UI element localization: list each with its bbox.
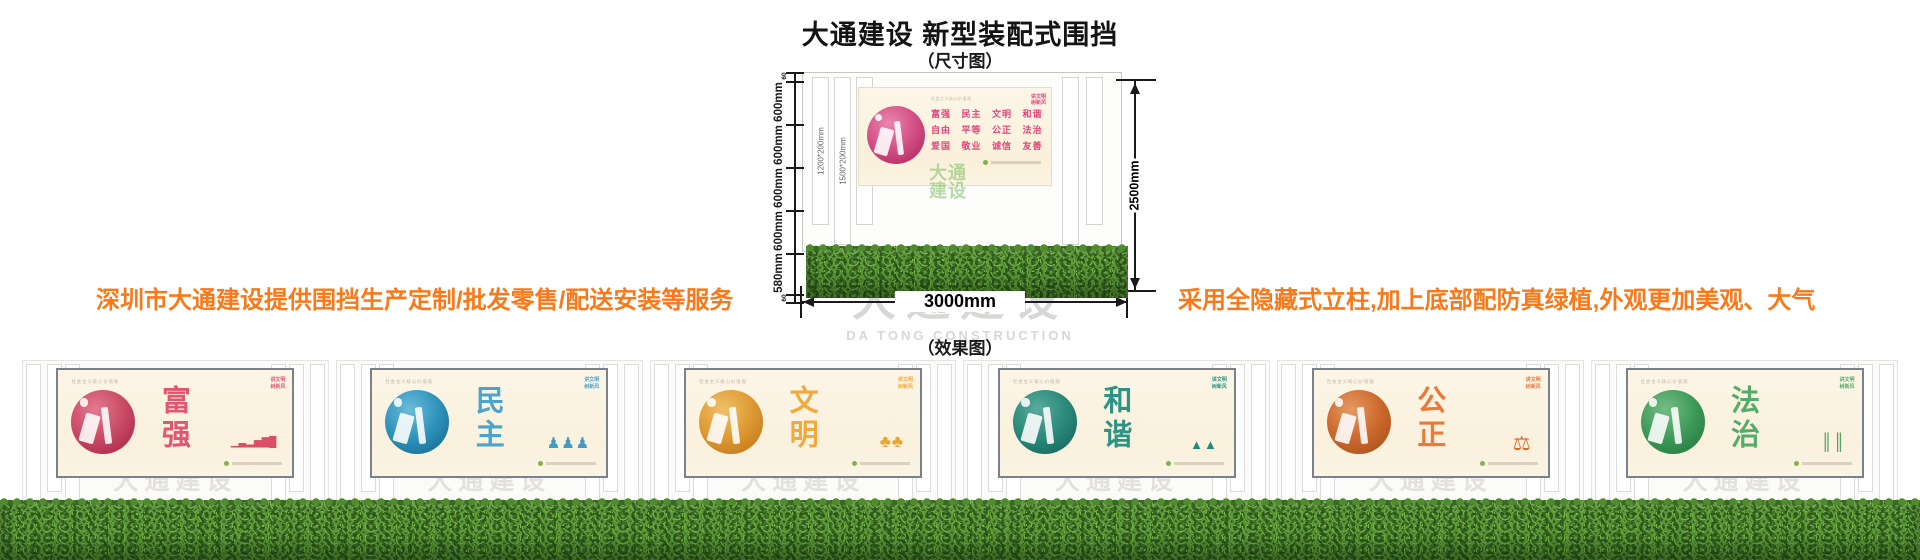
poster-badge: 讲文明 树新风: [898, 377, 913, 390]
fence-slat-right: [1062, 77, 1079, 245]
circle-decoration: [1020, 413, 1043, 446]
poster-badge: 讲文明 树新风: [584, 377, 599, 390]
poster-core-values: 社会主义核心价值观 讲文明 树新风 富强 民主 文明 和谐 自由 平等 公正 法…: [858, 87, 1052, 186]
fence-section-fazhi: 大通建设 DA TONG CONSTRUCTION 社会主义核心价值观 讲文明 …: [1591, 360, 1898, 510]
tiny-text-line: [1174, 462, 1224, 465]
footer-mark: [852, 461, 910, 466]
circle-decoration: [873, 127, 894, 156]
theme-circle: [1013, 390, 1077, 454]
width-dimension-label: 3000mm: [895, 291, 1025, 312]
green-dot: [538, 461, 543, 466]
promo-text-left: 深圳市大通建设提供围挡生产定制/批发零售/配送安装等服务: [96, 280, 733, 315]
city-bars-motif: ▁▃▂▅▇█: [231, 437, 277, 448]
theme-circle: [71, 390, 135, 454]
badge-line: 讲文明: [270, 377, 285, 384]
poster-badge: 讲文明 树新风: [1840, 377, 1855, 390]
theme-circle: [385, 390, 449, 454]
dimension-tick: [786, 253, 804, 255]
poster-badge: 讲文明 树新风: [1526, 377, 1541, 390]
dimension-tick: [786, 210, 804, 212]
circle-decoration: [1670, 406, 1682, 444]
circle-decoration: [101, 406, 113, 444]
arrowhead-left: [803, 297, 814, 307]
arrowhead-right: [1116, 297, 1127, 307]
fence-section-gongzheng: 大通建设 DA TONG CONSTRUCTION 社会主义核心价值观 讲文明 …: [1277, 360, 1584, 510]
hedge-bottom: [0, 500, 1920, 560]
circle-decoration: [875, 114, 883, 122]
poster-badge: 讲文明 树新风: [1031, 94, 1046, 106]
poster-wenming: 社会主义核心价值观 讲文明 树新风 文明 ♣♣: [684, 368, 922, 478]
slat-size-label: 1200*200mm: [816, 127, 825, 175]
green-logo-watermark: 大通建设: [929, 164, 973, 200]
footer-mark: [983, 160, 1041, 165]
circle-decoration: [1021, 398, 1029, 406]
arrowhead-down: [1130, 278, 1140, 289]
green-dot: [983, 160, 988, 165]
fence-section-fuqiang: 大通建设 DA TONG CONSTRUCTION 社会主义核心价值观 讲文明 …: [22, 360, 329, 510]
green-dot: [1794, 461, 1799, 466]
scales-motif: ⚖: [1513, 431, 1532, 456]
values-rows: 富强 民主 文明 和谐 自由 平等 公正 法治 爱国 敬业 诚信 友善: [931, 106, 1043, 154]
fence-slat-1500: 1500*200mm: [834, 77, 851, 245]
value-word: 富强: [156, 385, 190, 453]
poster-hexie: 社会主义核心价值观 讲文明 树新风 和谐 ▲▲: [998, 368, 1236, 478]
green-dot: [852, 461, 857, 466]
fence-section-minzhu: 大通建设 DA TONG CONSTRUCTION 社会主义核心价值观 讲文明 …: [336, 360, 643, 510]
people-motif: ♟♟♟: [547, 434, 590, 452]
value-word: 公正: [1412, 385, 1446, 453]
height-dimension-label: 2500mm: [1127, 159, 1144, 213]
badge-line: 讲文明: [1840, 377, 1855, 384]
theme-circle: [1641, 390, 1705, 454]
circle-decoration: [1648, 413, 1671, 446]
fence-section-wenming: 大通建设 DA TONG CONSTRUCTION 社会主义核心价值观 讲文明 …: [650, 360, 957, 510]
dimension-diagram-caption: （尺寸图）: [0, 47, 1920, 72]
circle-decoration: [79, 413, 102, 446]
tiny-text-line: [546, 462, 596, 465]
badge-line: 树新风: [584, 384, 599, 391]
badge-line: 树新风: [1212, 384, 1227, 391]
footer-mark: [538, 461, 596, 466]
poster-badge: 讲文明 树新风: [270, 377, 285, 390]
effect-render: 大通建设 DA TONG CONSTRUCTION 社会主义核心价值观 讲文明 …: [22, 360, 1898, 510]
tiny-text-line: [232, 462, 282, 465]
poster-fuqiang: 社会主义核心价值观 讲文明 树新风 富强 ▁▃▂▅▇█: [56, 368, 294, 478]
poster-badge: 讲文明 树新风: [1212, 377, 1227, 390]
circle-decoration: [415, 406, 427, 444]
value-word: 民主: [470, 385, 504, 453]
fence-slat-right: [1086, 77, 1103, 225]
badge-line: 树新风: [898, 384, 913, 391]
circle-decoration: [392, 413, 415, 446]
green-dot: [224, 461, 229, 466]
badge-line: 讲文明: [1212, 377, 1227, 384]
circle-decoration: [1334, 413, 1357, 446]
green-dot: [1480, 461, 1485, 466]
circle-decoration: [1356, 406, 1368, 444]
green-dot: [1166, 461, 1171, 466]
dim-label-600: 600mm: [771, 80, 787, 124]
footer-mark: [1480, 461, 1538, 466]
poster-fazhi: 社会主义核心价值观 讲文明 树新风 法治 ║║: [1626, 368, 1864, 478]
poster-minzhu: 社会主义核心价值观 讲文明 树新风 民主 ♟♟♟: [370, 368, 608, 478]
dimension-cap: [1116, 79, 1156, 81]
dim-label-600: 600mm: [771, 123, 787, 167]
circle-decoration: [706, 413, 729, 446]
badge-line: 讲文明: [1526, 377, 1541, 384]
badge-line: 讲文明: [898, 377, 913, 384]
fence-section-hexie: 大通建设 DA TONG CONSTRUCTION 社会主义核心价值观 讲文明 …: [963, 360, 1270, 510]
dimension-line-left: [794, 72, 796, 302]
dim-label-600: 600mm: [771, 209, 787, 253]
circle-decoration: [394, 398, 402, 406]
badge-line: 树新风: [270, 384, 285, 391]
badge-line: 树新风: [1840, 384, 1855, 391]
tiny-text-line: [1802, 462, 1852, 465]
tiny-text-line: [860, 462, 910, 465]
poster-caption: 社会主义核心价值观: [931, 96, 1031, 102]
values-row: 爱国 敬业 诚信 友善: [931, 138, 1043, 154]
circle-decoration: [1649, 398, 1657, 406]
effect-render-caption: （效果图）: [0, 334, 1920, 359]
circle-decoration: [1335, 398, 1343, 406]
values-row: 自由 平等 公正 法治: [931, 122, 1043, 138]
value-word: 和谐: [1098, 385, 1132, 453]
tiny-text-line: [1488, 462, 1538, 465]
circle-decoration: [707, 398, 715, 406]
badge-line: 树新风: [1526, 384, 1541, 391]
tiny-text-line: [991, 161, 1041, 164]
value-word: 法治: [1726, 385, 1760, 453]
slat-size-label: 1500*200mm: [838, 137, 847, 185]
theme-circle: [867, 106, 925, 164]
circle-decoration: [894, 121, 904, 155]
dim-label-600: 600mm: [771, 166, 787, 210]
dimension-tick: [786, 124, 804, 126]
values-row: 富强 民主 文明 和谐: [931, 106, 1043, 122]
theme-circle: [1327, 390, 1391, 454]
arrowhead-up: [1130, 83, 1140, 94]
footer-mark: [1166, 461, 1224, 466]
dim-label-60-bottom: 60: [780, 287, 790, 309]
badge-line: 讲文明: [584, 377, 599, 384]
dimension-tick: [786, 167, 804, 169]
footer-mark: [1794, 461, 1852, 466]
circle-decoration: [80, 398, 88, 406]
fence-slat-1200: 1200*200mm: [812, 77, 829, 225]
circle-decoration: [1043, 406, 1055, 444]
circle-decoration: [729, 406, 741, 444]
poster-gongzheng: 社会主义核心价值观 讲文明 树新风 公正 ⚖: [1312, 368, 1550, 478]
theme-circle: [699, 390, 763, 454]
footer-mark: [224, 461, 282, 466]
bamboo-motif: ║║: [1821, 434, 1846, 452]
mountains-motif: ▲▲: [1190, 437, 1218, 452]
promo-text-right: 采用全隐藏式立柱,加上底部配防真绿植,外观更加美观、大气: [1178, 280, 1815, 315]
value-word: 文明: [784, 385, 818, 453]
trees-motif: ♣♣: [880, 432, 904, 452]
